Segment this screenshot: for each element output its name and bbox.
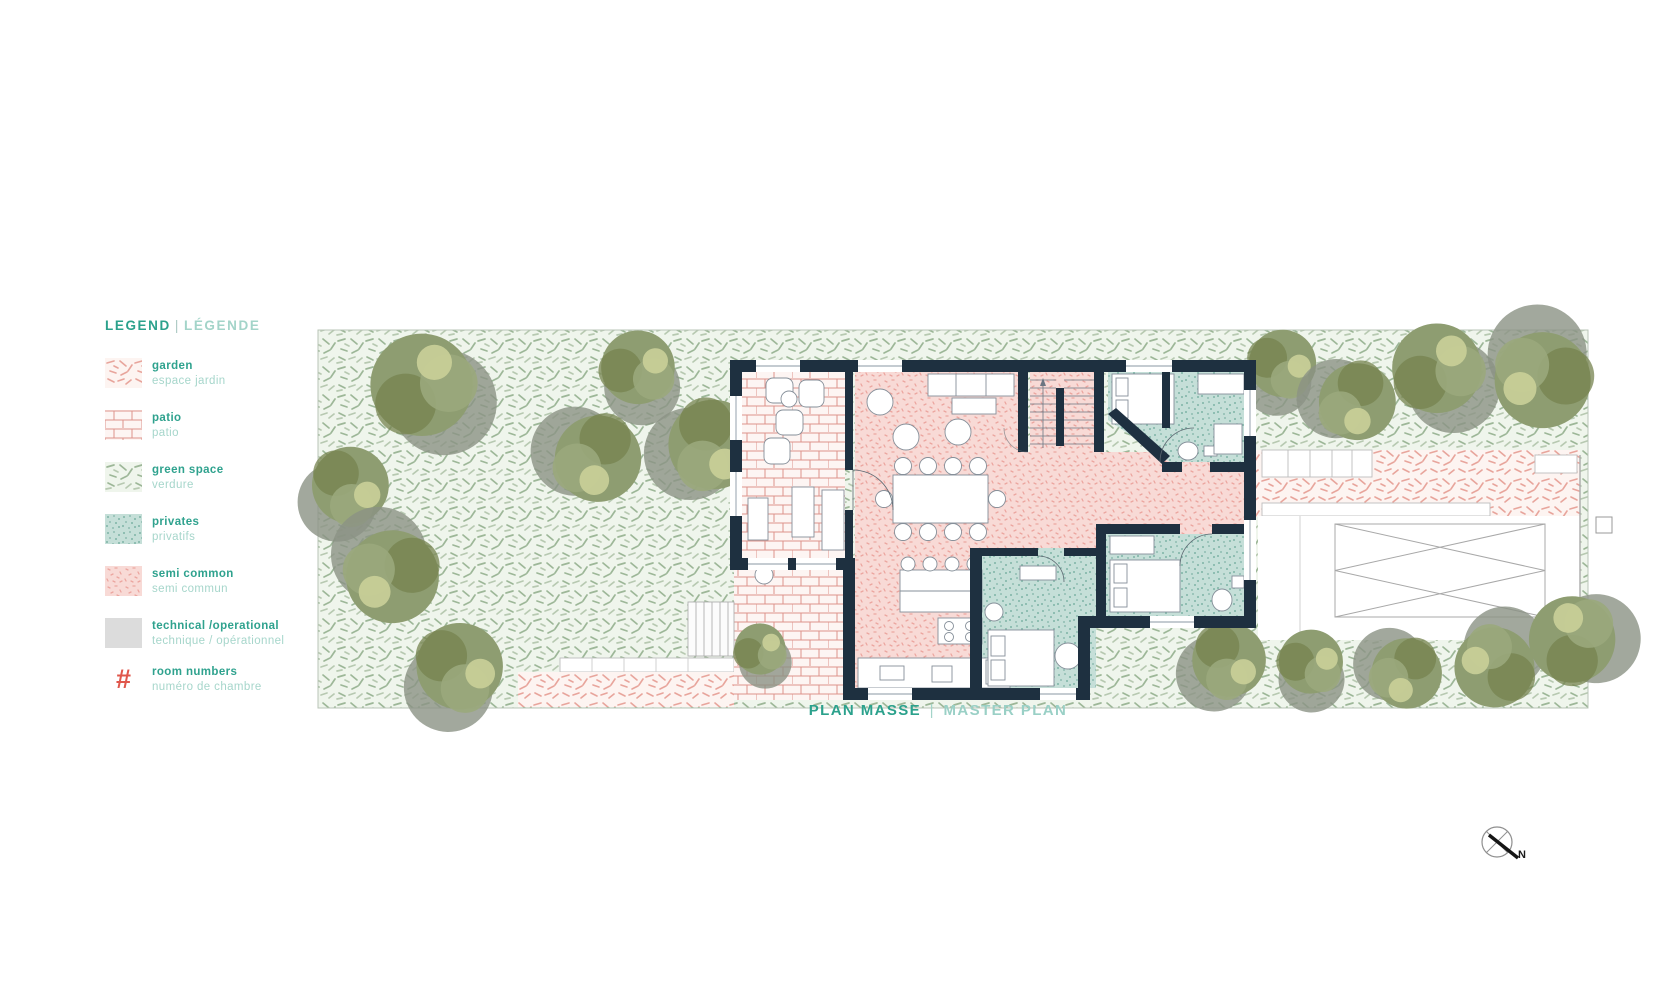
legend-item-privates: privates privatifs [105,514,199,545]
legend-label-en: garden [152,359,226,374]
legend-label-fr: semi commun [152,582,234,597]
legend-label-fr: verdure [152,478,224,493]
legend-item-technical: technical /operational technique / opéra… [105,618,284,649]
legend-label-fr: espace jardin [152,374,226,389]
legend-item-green-space: green space verdure [105,462,224,493]
legend-label-en: semi common [152,567,234,582]
garden-hatch-swatch-icon [105,358,142,388]
teal-speckle-swatch-icon [105,514,142,544]
caption-title-en: MASTER PLAN [944,702,1068,719]
gate-post [1596,517,1612,533]
legend-label-fr: privatifs [152,530,199,545]
legend-item-semi-common: semi common semi commun [105,566,234,597]
legend-title-separator: | [171,318,184,333]
caption-title-fr: PLAN MASSE [809,702,921,719]
legend-label-en: privates [152,515,199,530]
legend-label-fr: numéro de chambre [152,680,262,695]
ramp-marking [1335,524,1545,617]
hash-icon: # [105,664,142,694]
green-hatch-swatch-icon [105,462,142,492]
legend-label-fr: patio [152,426,181,441]
legend-title-fr: LÉGENDE [184,318,260,333]
legend-label-en: patio [152,411,181,426]
brick-swatch-icon [105,410,142,440]
legend-item-room-numbers: # room numbers numéro de chambre [105,664,262,695]
legend-label-en: technical /operational [152,619,284,634]
caption-separator: | [927,702,938,719]
north-label: N [1518,849,1526,861]
gray-swatch-icon [105,618,142,648]
north-compass [1482,827,1518,858]
legend-item-patio: patio patio [105,410,181,441]
legend-title: LEGEND|LÉGENDE [105,318,335,333]
legend-label-en: room numbers [152,665,262,680]
legend-item-garden: garden espace jardin [105,358,226,389]
plan-sheet: LEGEND|LÉGENDE garden espace jardin pati… [0,0,1680,1008]
site-plan [0,0,1680,1008]
plan-caption: PLAN MASSE | MASTER PLAN [698,702,1178,719]
legend-label-en: green space [152,463,224,478]
legend-title-en: LEGEND [105,318,171,333]
legend: LEGEND|LÉGENDE garden espace jardin pati… [105,318,335,333]
pink-speckle-swatch-icon [105,566,142,596]
steps [688,602,734,656]
legend-label-fr: technique / opérationnel [152,634,284,649]
